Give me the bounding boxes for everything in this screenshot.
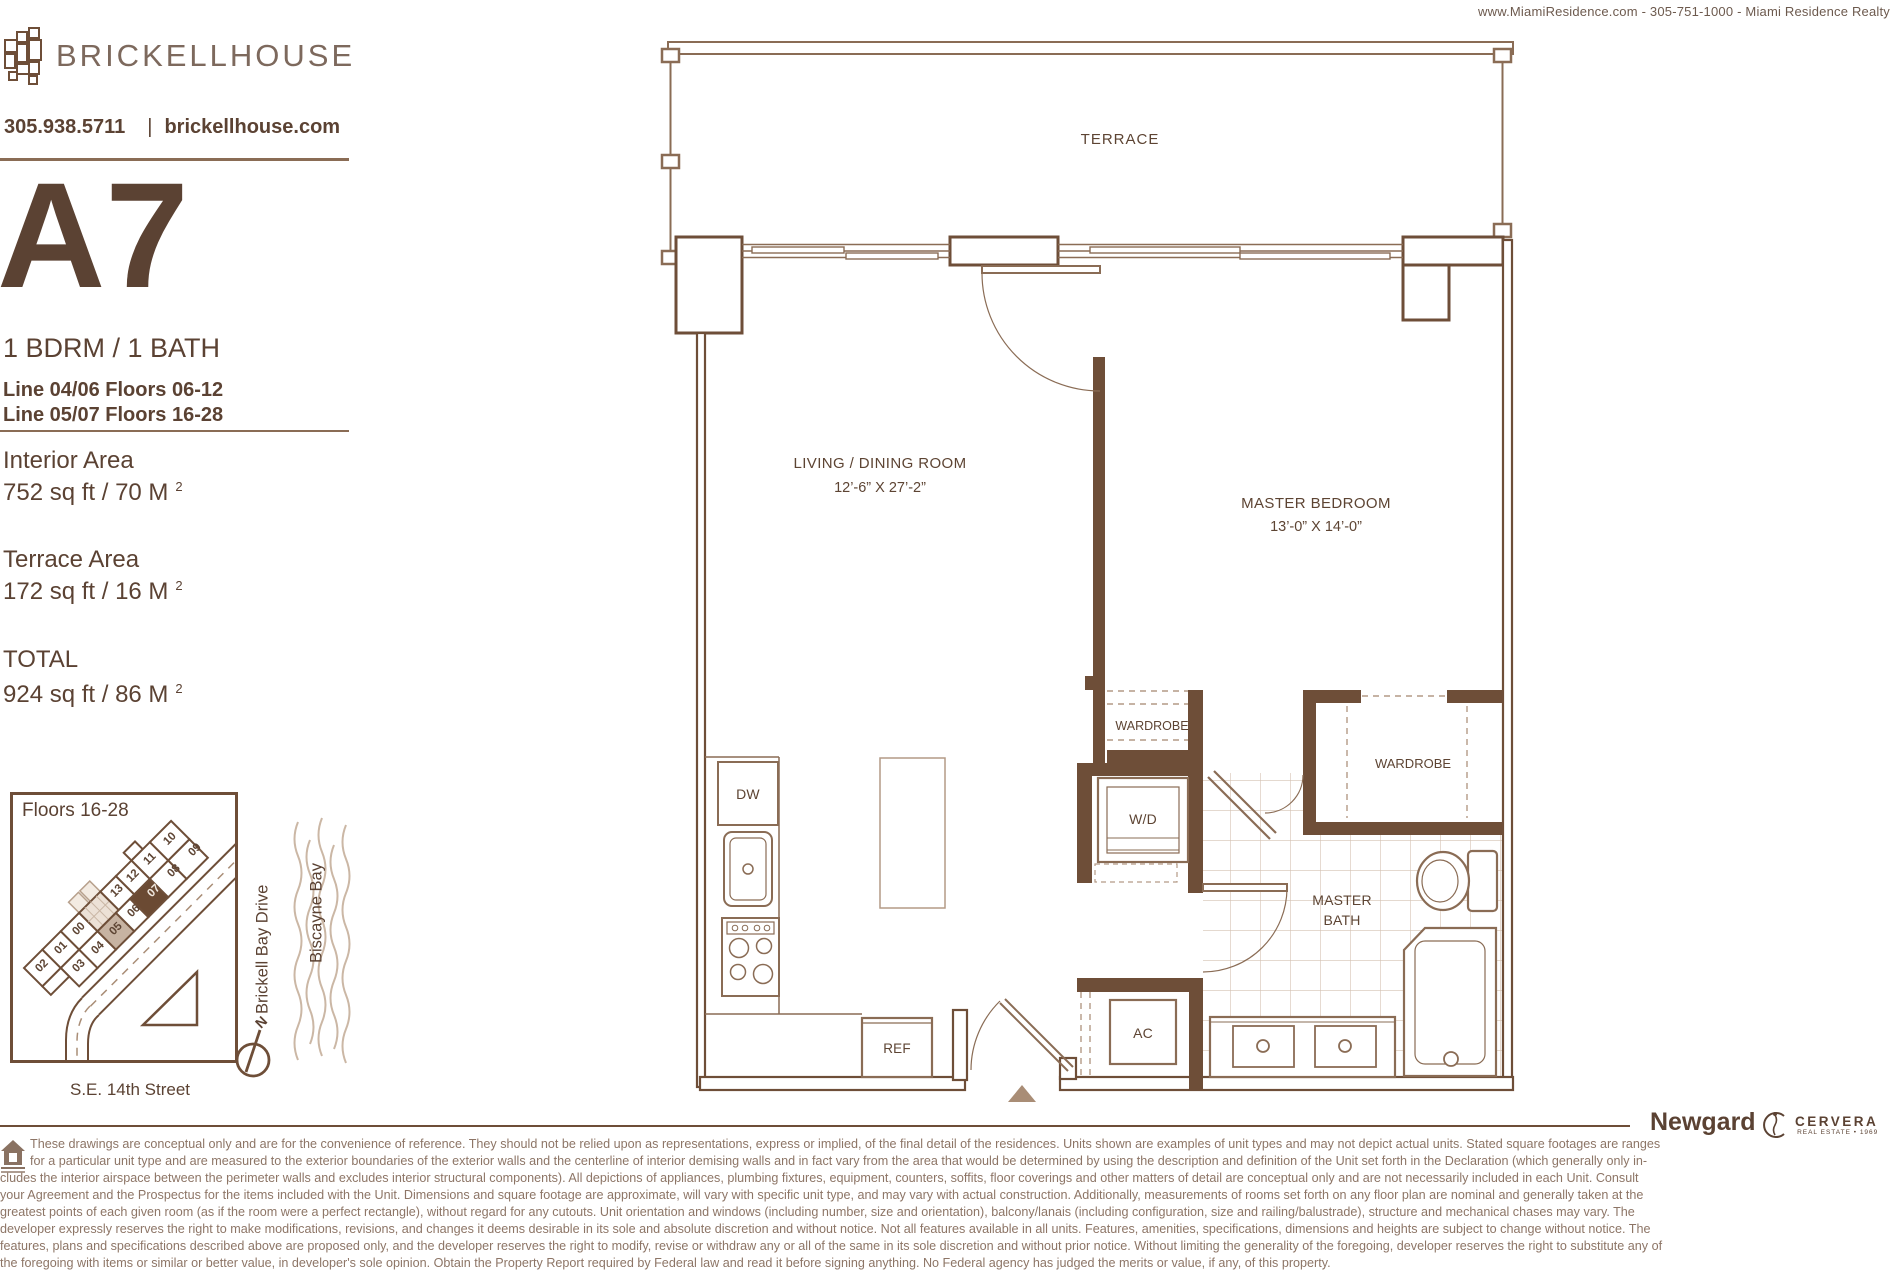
- realtor-header-line: www.MiamiResidence.com - 305-751-1000 - …: [1478, 4, 1890, 19]
- street-biscayne-bay: Biscayne Bay: [306, 838, 328, 988]
- entry-marker-triangle: [1008, 1085, 1036, 1102]
- website-link[interactable]: brickellhouse.com: [164, 116, 340, 138]
- street-se-14th: S.E. 14th Street: [45, 1080, 215, 1100]
- brand-name: BRICKELLHOUSE: [56, 38, 355, 74]
- footer-rule: [0, 1125, 1630, 1127]
- living-room-label: LIVING / DINING ROOM: [780, 455, 980, 472]
- disclaimer-line-1: These drawings are conceptual only and a…: [0, 1136, 1896, 1153]
- terrace-area-value: 172 sq ft / 16 M2: [3, 578, 183, 606]
- total-area-number: 924 sq ft / 86 M: [3, 681, 168, 708]
- sliding-doors: [742, 245, 1403, 260]
- disclaimer-line-5: greatest points of each given room (as i…: [0, 1204, 1896, 1221]
- interior-area-number: 752 sq ft / 70 M: [3, 479, 168, 506]
- total-area-sup: 2: [175, 681, 182, 696]
- master-bath-label-1: MASTER: [1292, 892, 1392, 908]
- master-bath-label-2: BATH: [1292, 912, 1392, 928]
- line-floors-1: Line 04/06 Floors 06-12: [3, 379, 223, 402]
- line-floors-2: Line 05/07 Floors 16-28: [3, 404, 223, 427]
- cervera-tagline: REAL ESTATE • 1969: [1795, 1129, 1878, 1136]
- refrigerator-label: REF: [872, 1041, 922, 1056]
- disclaimer-line-4: your Agreement and the Prospectus for th…: [0, 1187, 1896, 1204]
- terrace-area-label: Terrace Area: [3, 546, 139, 574]
- interior-area-label: Interior Area: [3, 447, 134, 475]
- washer-dryer-label: W/D: [1103, 811, 1183, 827]
- unit-config: 1 BDRM / 1 BATH: [3, 333, 220, 364]
- master-bedroom-label: MASTER BEDROOM: [1216, 495, 1416, 512]
- floorplan-flyer-page: www.MiamiResidence.com - 305-751-1000 - …: [0, 0, 1896, 1278]
- contact-divider: |: [147, 116, 152, 138]
- kitchen-fixtures: [705, 757, 945, 1077]
- wardrobe-1-label: WARDROBE: [1102, 719, 1202, 733]
- total-area-label: TOTAL: [3, 646, 78, 674]
- master-bedroom-dims: 13’-0” X 14’-0”: [1216, 519, 1416, 535]
- disclaimer-line-3: cludes the interior airspace between the…: [0, 1170, 1896, 1187]
- ac-label: AC: [1113, 1025, 1173, 1041]
- key-plan-title: Floors 16-28: [22, 800, 129, 822]
- terrace-railing: [662, 42, 1513, 264]
- wardrobe-2-label: WARDROBE: [1358, 756, 1468, 771]
- terrace-label: TERRACE: [1040, 131, 1200, 148]
- disclaimer-line-8: the foregoing with items or similar or b…: [0, 1255, 1896, 1272]
- disclaimer-line-2: for a particular unit type and are measu…: [0, 1153, 1896, 1170]
- brickellhouse-logo-icon: [5, 28, 41, 84]
- newgard-logo: Newgard: [1650, 1108, 1756, 1137]
- interior-area-value: 752 sq ft / 70 M2: [3, 479, 183, 507]
- terrace-area-number: 172 sq ft / 16 M: [3, 578, 168, 605]
- unit-code: A7: [0, 160, 189, 310]
- cervera-name: CERVERA: [1795, 1114, 1878, 1129]
- disclaimer-line-6: developer expressly reserves the right t…: [0, 1221, 1896, 1238]
- plan-linework-svg: [0, 0, 1896, 1278]
- contact-line: 305.938.5711|brickellhouse.com: [4, 116, 340, 139]
- divider-rule-mid: [0, 430, 349, 432]
- living-room-dims: 12’-6” X 27’-2”: [780, 480, 980, 496]
- disclaimer-line-7: features, plans and specifications descr…: [0, 1238, 1896, 1255]
- phone-number: 305.938.5711: [4, 116, 125, 138]
- street-brickell-bay-drive: Brickell Bay Drive: [252, 874, 274, 1024]
- dishwasher-label: DW: [728, 786, 768, 802]
- north-compass-icon: [237, 1030, 269, 1076]
- terrace-area-sup: 2: [175, 578, 182, 593]
- interior-area-sup: 2: [175, 479, 182, 494]
- total-area-value: 924 sq ft / 86 M2: [3, 681, 183, 709]
